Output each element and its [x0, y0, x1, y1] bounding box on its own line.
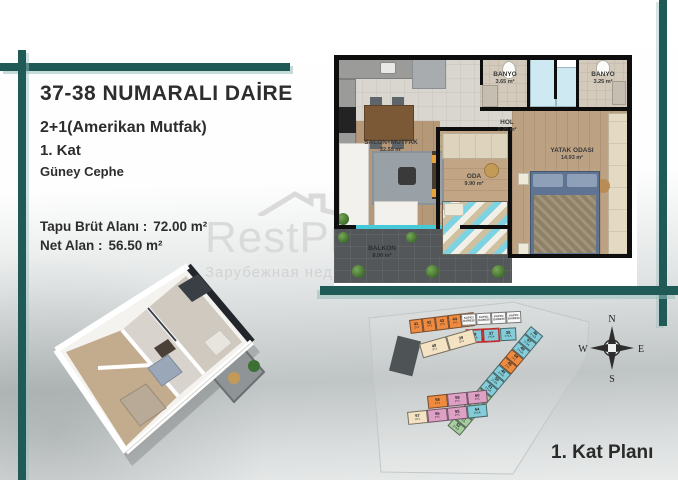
unit-type: 2+1 [435, 416, 440, 420]
room-area: 14.93 m² [532, 155, 612, 162]
site-plan-caption: 1. Kat Planı [551, 442, 653, 464]
balcony-plant [352, 265, 365, 278]
site-unit: 37 2+1A [483, 328, 500, 342]
room-area: 22.55 m² [356, 147, 426, 154]
wall-bedroom-bottom [512, 254, 632, 258]
coffee-table [398, 167, 416, 185]
light-shaft-1 [530, 55, 556, 107]
room-area: 3.65 m² [480, 79, 530, 86]
kitchen-sink [380, 62, 396, 74]
deco-bar-middle [320, 286, 678, 295]
room-label-oda: ODA 9.90 m² [444, 173, 504, 189]
balcony-plant [426, 265, 439, 278]
apartment-type: 2+1(Amerikan Mutfak) [40, 119, 293, 137]
compass-s: S [609, 374, 615, 385]
dining-chair [392, 97, 404, 105]
gross-area-value: 72.00 m² [153, 219, 207, 234]
nightstand [518, 173, 529, 185]
balcony-plant [406, 232, 417, 243]
unit-type: 2+1 [414, 326, 419, 330]
apartment-facade: Güney Cephe [40, 164, 293, 179]
wall-oda-bedroom [508, 127, 512, 258]
balcony-plant [492, 265, 505, 278]
site-unit-kapici: KAPICI DAİRESİ [461, 313, 477, 326]
site-unit: 57 3+1 [407, 410, 428, 425]
unit-type: 2+1 [440, 323, 445, 327]
site-unit: 60 2+1 [467, 390, 488, 405]
apartment-title: 37-38 NUMARALI DAİRE [40, 82, 293, 106]
deco-bar-right [659, 0, 667, 326]
unit-type: 3+1 [415, 418, 420, 422]
room-label-banyo2: BANYO 3.25 m² [578, 71, 628, 87]
page: RestPr Зарубежная нед 37-38 NUMARALI DAİ… [0, 0, 678, 480]
unit-type: 2+1 [455, 400, 460, 404]
site-unit: 36 2+1A [500, 327, 517, 341]
wall-salon-bottom-right [460, 225, 512, 229]
unit-type: 3+1 [432, 347, 438, 351]
unit-type: 2+1A [488, 336, 495, 339]
room-area: 2.20 m² [482, 127, 532, 134]
apartment-floor: 1. Kat [40, 142, 293, 159]
room-label-balkon: BALKON 8.00 m² [352, 245, 412, 261]
compass-w: W [578, 344, 588, 355]
bed-pillow [533, 174, 563, 187]
dining-table [364, 105, 414, 141]
unit-type: 2+1A [505, 335, 512, 338]
wall-bath-bottom [480, 107, 630, 111]
wall-left [334, 55, 339, 229]
room-label-yatak: YATAK ODASI 14.93 m² [532, 147, 612, 163]
dining-chair [370, 97, 382, 105]
unit-type: DAİRESİ [493, 318, 504, 322]
compass-n: N [608, 314, 615, 325]
unit-type: DAİRESİ [478, 319, 489, 323]
area-info: Tapu Brüt Alanı :72.00 m² Net Alan :56.5… [40, 219, 293, 253]
room-label-hol: HOL 2.20 m² [482, 119, 532, 135]
site-unit: 56 2+1 [427, 408, 448, 423]
room-label-salon: SALON+MUTFAK 22.55 m² [356, 139, 426, 155]
wall-salon-bottom-left [334, 225, 356, 229]
floor-plan-2d: SALON+MUTFAK 22.55 m² ODA 9.90 m² YATAK … [334, 55, 637, 289]
unit-type: 2+1 [427, 325, 432, 329]
site-unit: 59 2+1 [447, 392, 468, 407]
site-unit-kapici: KAPICI DAİRESİ [476, 312, 492, 325]
site-unit: 58 1+1 [427, 394, 448, 409]
unit-type: 1+1 [435, 402, 440, 406]
wall-bath-divider2 [554, 55, 557, 99]
deco-bar-top [0, 63, 290, 71]
gross-area-line: Tapu Brüt Alanı :72.00 m² [40, 219, 293, 234]
room-label-banyo1: BANYO 3.65 m² [480, 71, 530, 87]
unit-type: 2+1A [474, 411, 481, 415]
bed-pillow [567, 174, 597, 187]
bed-blanket [534, 195, 596, 253]
oda-wardrobe [442, 133, 508, 159]
unit-type: 2+1 [453, 322, 458, 326]
unit-type: DAİRESİ [508, 317, 519, 321]
balcony-plant [338, 232, 349, 243]
site-unit: 54 2+1A [467, 404, 488, 419]
site-unit-kapici: KAPICI DAİRESİ [506, 311, 522, 324]
compass-e: E [638, 344, 644, 355]
wall-oda-left [436, 129, 440, 229]
stove [338, 107, 356, 133]
unit-type: 2+1A [452, 425, 459, 432]
unit-type: 2+1 [455, 414, 460, 418]
room-area: 8.00 m² [352, 253, 412, 260]
iso-balcony-plant [248, 360, 260, 372]
floor-plan-3d [28, 250, 273, 480]
unit-type: 2+1 [475, 398, 480, 402]
shower-tray [482, 85, 498, 107]
room-area: 3.25 m² [578, 79, 628, 86]
light-shaft-2 [556, 67, 578, 107]
entry-closet [412, 59, 446, 89]
gross-area-label: Tapu Brüt Alanı : [40, 219, 147, 234]
armchair [374, 201, 418, 227]
site-unit-kapici: KAPICI DAİRESİ [491, 312, 507, 325]
unit-type: DAİRESİ [463, 319, 474, 323]
room-area: 9.90 m² [444, 181, 504, 188]
unit-type: 2+1 [459, 340, 465, 344]
iso-balcony-table [228, 372, 240, 384]
wall-top [334, 55, 632, 60]
site-plan: N S W E 41 2+1 42 2+1 43 2+1 44 2+1 45 [363, 296, 668, 478]
oda-pillow [444, 203, 464, 216]
info-panel: 37-38 NUMARALI DAİRE 2+1(Amerikan Mutfak… [40, 82, 293, 253]
site-unit: 55 2+1 [447, 406, 468, 421]
deco-bar-left [18, 50, 26, 480]
